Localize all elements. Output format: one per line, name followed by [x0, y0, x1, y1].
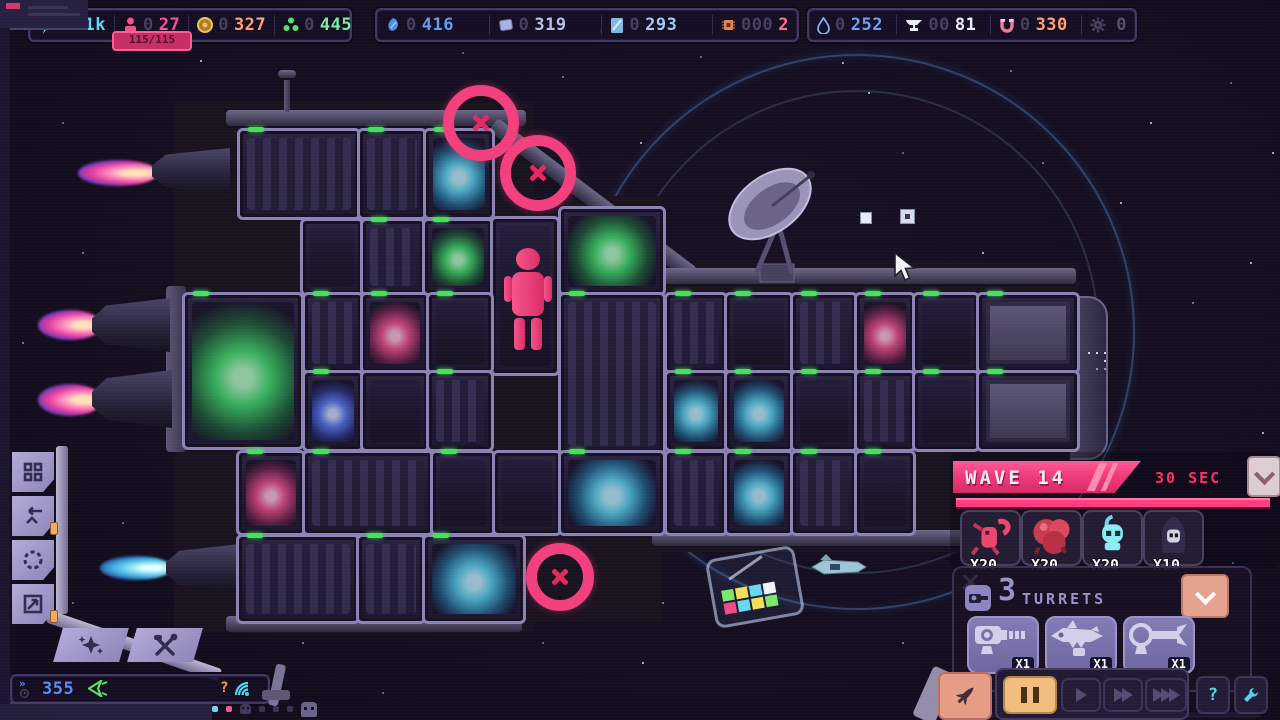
- notification-led: [50, 522, 58, 535]
- ship-room[interactable]: [664, 370, 728, 452]
- hull-deck: [652, 268, 1076, 284]
- enemy-card[interactable]: X20: [960, 510, 1021, 566]
- particle-cluster: [1088, 352, 1090, 354]
- turrets-label: TURRETS: [1022, 590, 1106, 608]
- anvil-icon: [905, 18, 923, 32]
- railgun-icon: [1125, 618, 1189, 658]
- pause-button[interactable]: [1003, 676, 1057, 714]
- wave-banner: WAVE 14: [953, 461, 1141, 493]
- chevron-down-icon: [1194, 583, 1215, 604]
- wave-dot-marker: [273, 706, 279, 712]
- ship-room[interactable]: [558, 292, 666, 456]
- gear-icon: [1090, 17, 1106, 33]
- ship-room[interactable]: [558, 450, 666, 536]
- salvage-button[interactable]: [12, 584, 54, 624]
- brain-beast-enemy-icon: [1025, 514, 1078, 558]
- ship-room[interactable]: [426, 370, 494, 452]
- blocked-node-marker: [526, 543, 594, 611]
- ship-room[interactable]: [422, 218, 494, 296]
- autocannon-icon: [969, 618, 1033, 658]
- ship-room[interactable]: [237, 128, 361, 220]
- turret-card-railgun[interactable]: X1: [1123, 616, 1195, 674]
- antenna-top: [278, 70, 296, 78]
- resource-coins: 0327: [188, 15, 274, 35]
- launch-battle-button[interactable]: [938, 672, 992, 720]
- engine-nozzle: [152, 148, 230, 194]
- ship-room[interactable]: [854, 450, 916, 536]
- ship-room[interactable]: [360, 218, 426, 296]
- wave-skull-marker: [240, 704, 251, 714]
- move-rooms-button[interactable]: [12, 496, 54, 536]
- enemy-card[interactable]: X20: [1021, 510, 1082, 566]
- engine-flame: [78, 160, 158, 186]
- ship-room[interactable]: [664, 292, 728, 374]
- crossed-tools-icon: [152, 633, 178, 657]
- resource-gears: 0: [1081, 15, 1135, 35]
- ship-room[interactable]: [854, 370, 916, 452]
- wave-dot-marker: [212, 706, 218, 712]
- spirit-skull-enemy-icon: [1086, 514, 1139, 558]
- pause-icon: [1021, 687, 1027, 703]
- ship-room[interactable]: [356, 534, 426, 624]
- turret-card-autocannon[interactable]: X1: [967, 616, 1039, 674]
- debris: [860, 212, 872, 224]
- ship-room[interactable]: [854, 292, 916, 374]
- grid-icon: [23, 462, 43, 482]
- ship-room[interactable]: [182, 292, 304, 450]
- resource-group-3: 0252 0081 0330 0: [807, 8, 1137, 42]
- cargo-crate: [705, 545, 806, 630]
- fast-button[interactable]: [1103, 678, 1143, 712]
- clock-icon: [20, 689, 29, 698]
- help-hint: ?: [220, 680, 228, 696]
- magnet-icon: [999, 17, 1015, 33]
- turrets-collapse-button[interactable]: [1181, 574, 1229, 618]
- workshop-button[interactable]: [127, 628, 203, 662]
- drone-ship: [810, 554, 868, 580]
- ship-room[interactable]: [430, 450, 496, 536]
- satellite-dish: [718, 156, 836, 288]
- engine-flame: [100, 556, 172, 580]
- turret-count: 3: [998, 573, 1016, 608]
- oil-drop-icon: [817, 17, 830, 34]
- wave-title: WAVE 14: [965, 467, 1066, 489]
- resource-oil: 0252: [809, 15, 891, 35]
- corner-pipe: [28, 13, 80, 16]
- ship-room[interactable]: [357, 128, 427, 220]
- rocket-icon: [952, 683, 978, 709]
- ship-room[interactable]: [724, 292, 794, 374]
- ship-room[interactable]: [236, 450, 306, 536]
- crew-figure: [503, 248, 553, 352]
- ship-room[interactable]: [912, 292, 980, 374]
- enemy-card[interactable]: X20: [1082, 510, 1143, 566]
- resource-biomass: 0445: [274, 15, 360, 35]
- turret-card-missile[interactable]: X1: [1045, 616, 1117, 674]
- corner-deco: [0, 0, 88, 30]
- crew-capacity-badge: 115/115: [112, 31, 192, 51]
- mech-arm: [262, 690, 290, 700]
- ship-room[interactable]: [790, 370, 858, 452]
- settings-button[interactable]: [1234, 676, 1268, 714]
- wave-progress-bar: [956, 498, 1270, 507]
- wrench-icon: [1242, 686, 1260, 704]
- game-screen: 291k 027 0327 0445 115/115 0416: [0, 0, 1280, 720]
- ship-room[interactable]: [558, 206, 666, 296]
- move-arrows-icon: [22, 506, 44, 526]
- wave-dot-marker: [226, 706, 232, 712]
- engine-nozzle: [92, 370, 172, 428]
- ship-room[interactable]: [236, 534, 360, 624]
- missile-shark-icon: [1047, 618, 1111, 658]
- signal-icon: [232, 679, 252, 699]
- debris: [900, 209, 915, 224]
- resource-hydroponics: 0416: [377, 15, 462, 35]
- plating-icon: [498, 17, 514, 33]
- ship-room[interactable]: [724, 450, 794, 536]
- mouse-cursor: [893, 252, 919, 282]
- chip-icon: [721, 17, 736, 33]
- ship-room[interactable]: [302, 450, 434, 536]
- turret-category-icon: [965, 585, 991, 611]
- wave-dot-marker: [259, 706, 265, 712]
- wave-dot-marker: [287, 706, 293, 712]
- resource-plating: 0319: [489, 15, 575, 35]
- enemy-card[interactable]: X10: [1143, 510, 1204, 566]
- ship-room[interactable]: [790, 450, 858, 536]
- sparkles-icon: [78, 633, 104, 657]
- hydro-leaf-icon: [385, 17, 401, 33]
- fastest-button[interactable]: [1145, 678, 1187, 712]
- resource-chips: 0002: [712, 15, 797, 35]
- ship-room[interactable]: [664, 450, 728, 536]
- play-icon: [1076, 688, 1087, 702]
- resource-magnet: 0330: [990, 15, 1076, 35]
- ship-room[interactable]: [360, 370, 430, 452]
- engine-nozzle: [92, 298, 170, 352]
- ship-room[interactable]: [302, 370, 364, 452]
- ship-room[interactable]: [724, 370, 794, 452]
- export-box-icon: [22, 593, 44, 615]
- coin-icon: [197, 17, 213, 33]
- wave-skull-marker: [301, 702, 317, 717]
- blocked-node-marker: [500, 135, 576, 211]
- ship-room[interactable]: [422, 534, 526, 624]
- ship-room[interactable]: [302, 292, 364, 374]
- resource-group-2: 0416 0319 0293 0002: [375, 8, 799, 42]
- launch-status-box: » 355 ?: [10, 674, 270, 704]
- ship-room[interactable]: [790, 292, 858, 374]
- biomass-icon: [283, 17, 299, 33]
- launch-resource-value: 355: [42, 679, 74, 699]
- ship-room[interactable]: [360, 292, 430, 374]
- rotate-button[interactable]: [12, 540, 54, 580]
- build-menu-button[interactable]: [12, 452, 54, 492]
- glass-icon: [610, 17, 624, 34]
- resource-forge: 0081: [896, 15, 984, 35]
- corner-pipe: [28, 6, 68, 9]
- wave-timer: 30 SEC: [1155, 469, 1221, 487]
- antenna: [284, 76, 290, 112]
- chevron-down-icon: [1253, 464, 1274, 485]
- ship-room[interactable]: [300, 218, 364, 296]
- notification-led: [50, 610, 58, 623]
- help-button[interactable]: ?: [1196, 676, 1230, 714]
- fast-forward-icon: [1122, 688, 1133, 702]
- dashed-circle-icon: [22, 549, 44, 571]
- help-label: ?: [1208, 685, 1218, 705]
- ship-room[interactable]: [912, 370, 980, 452]
- scorpion-enemy-icon: [964, 514, 1017, 558]
- ship-room[interactable]: [976, 292, 1080, 374]
- play-button[interactable]: [1061, 678, 1101, 712]
- pause-icon: [1033, 687, 1039, 703]
- triple-forward-icon: [1169, 688, 1180, 702]
- upgrades-button[interactable]: [53, 628, 129, 662]
- resource-glass: 0293: [601, 15, 685, 35]
- ship-room[interactable]: [976, 370, 1080, 452]
- ship-room[interactable]: [426, 292, 494, 374]
- reaper-enemy-icon: [1147, 514, 1200, 558]
- corner-light: [6, 3, 20, 9]
- ship-token-icon: [88, 680, 108, 697]
- wave-collapse-button[interactable]: [1247, 456, 1280, 497]
- ship-room[interactable]: [492, 450, 562, 536]
- edge-strip: [0, 28, 10, 704]
- corner-deco: [0, 702, 212, 720]
